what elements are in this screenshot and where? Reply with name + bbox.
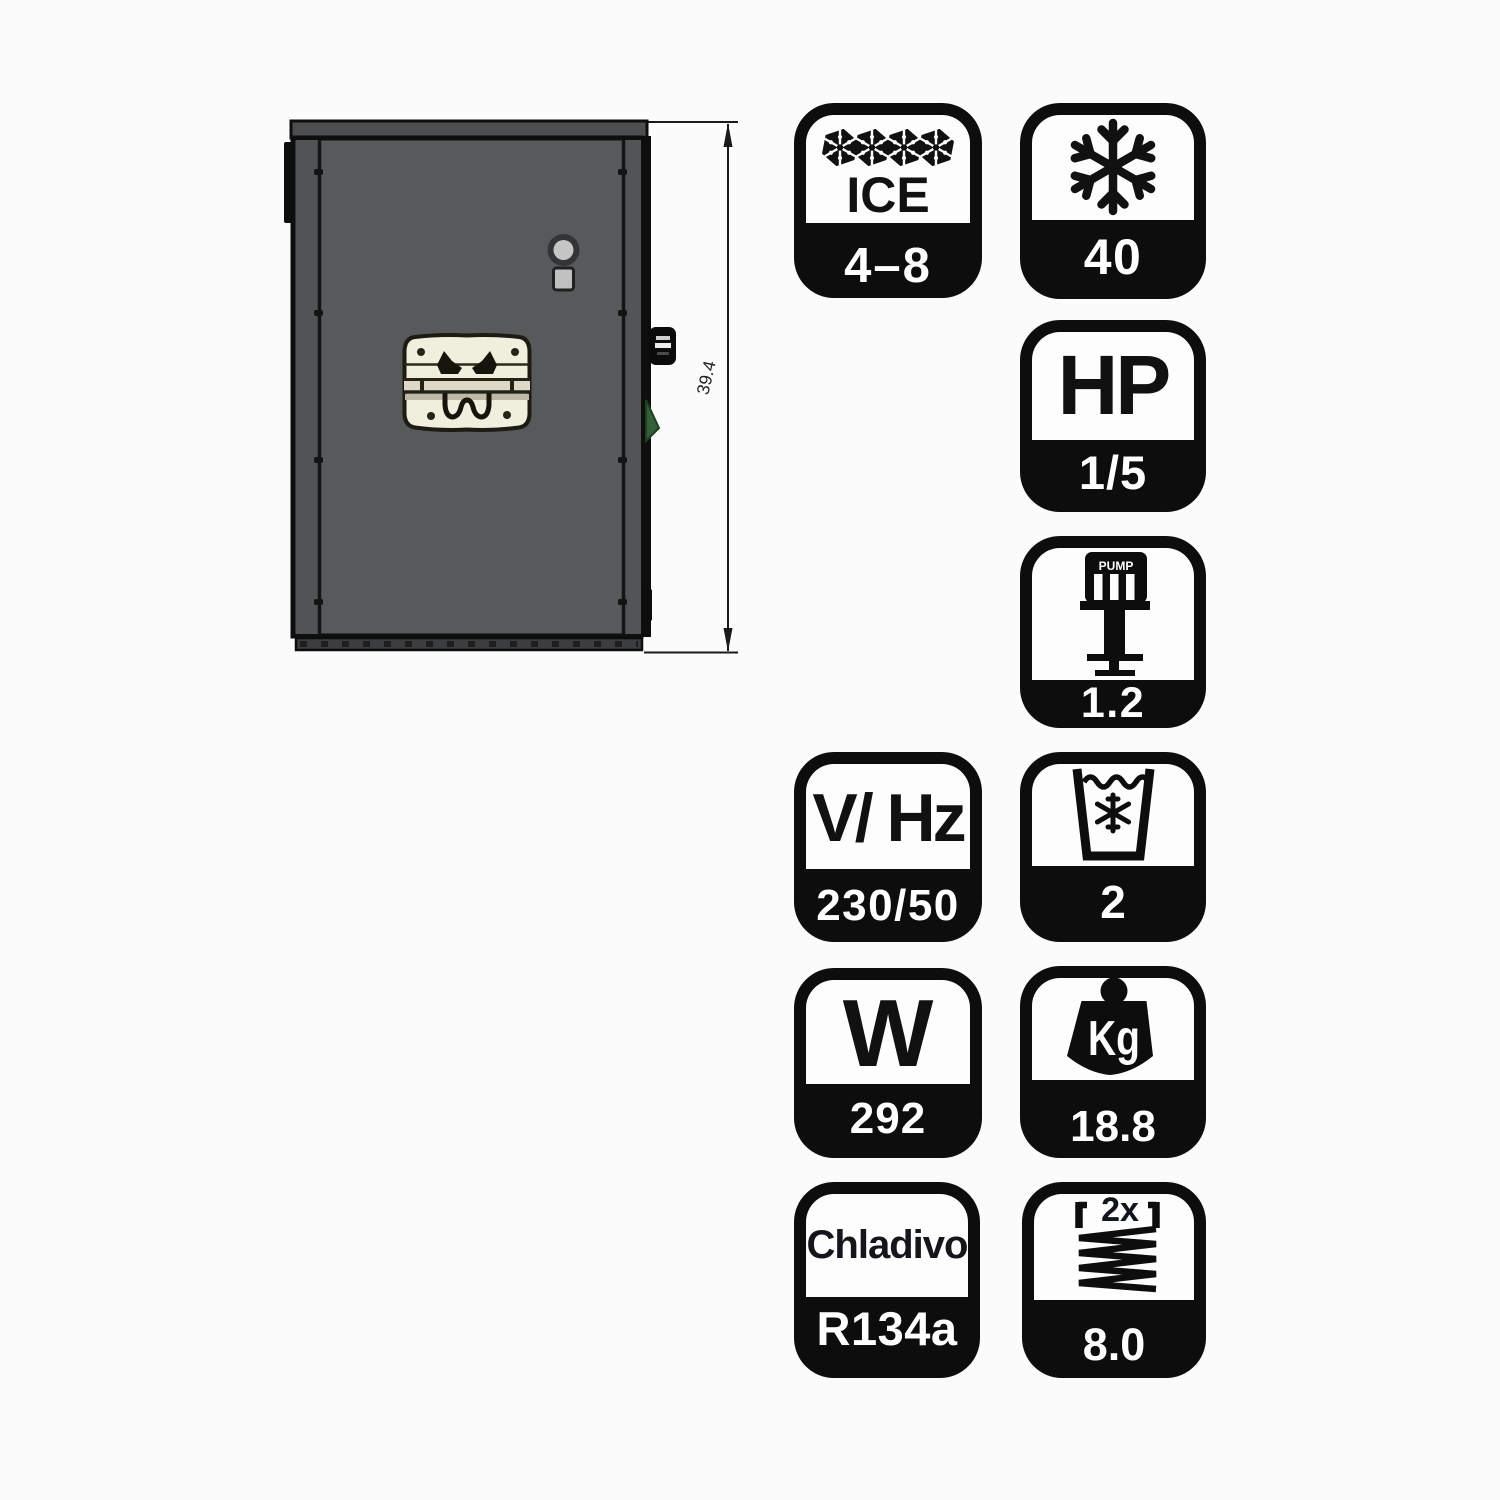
svg-text:39.4: 39.4 [693,359,720,397]
svg-text:Kg: Kg [1088,1012,1140,1066]
svg-text:PUMP: PUMP [1099,559,1134,573]
